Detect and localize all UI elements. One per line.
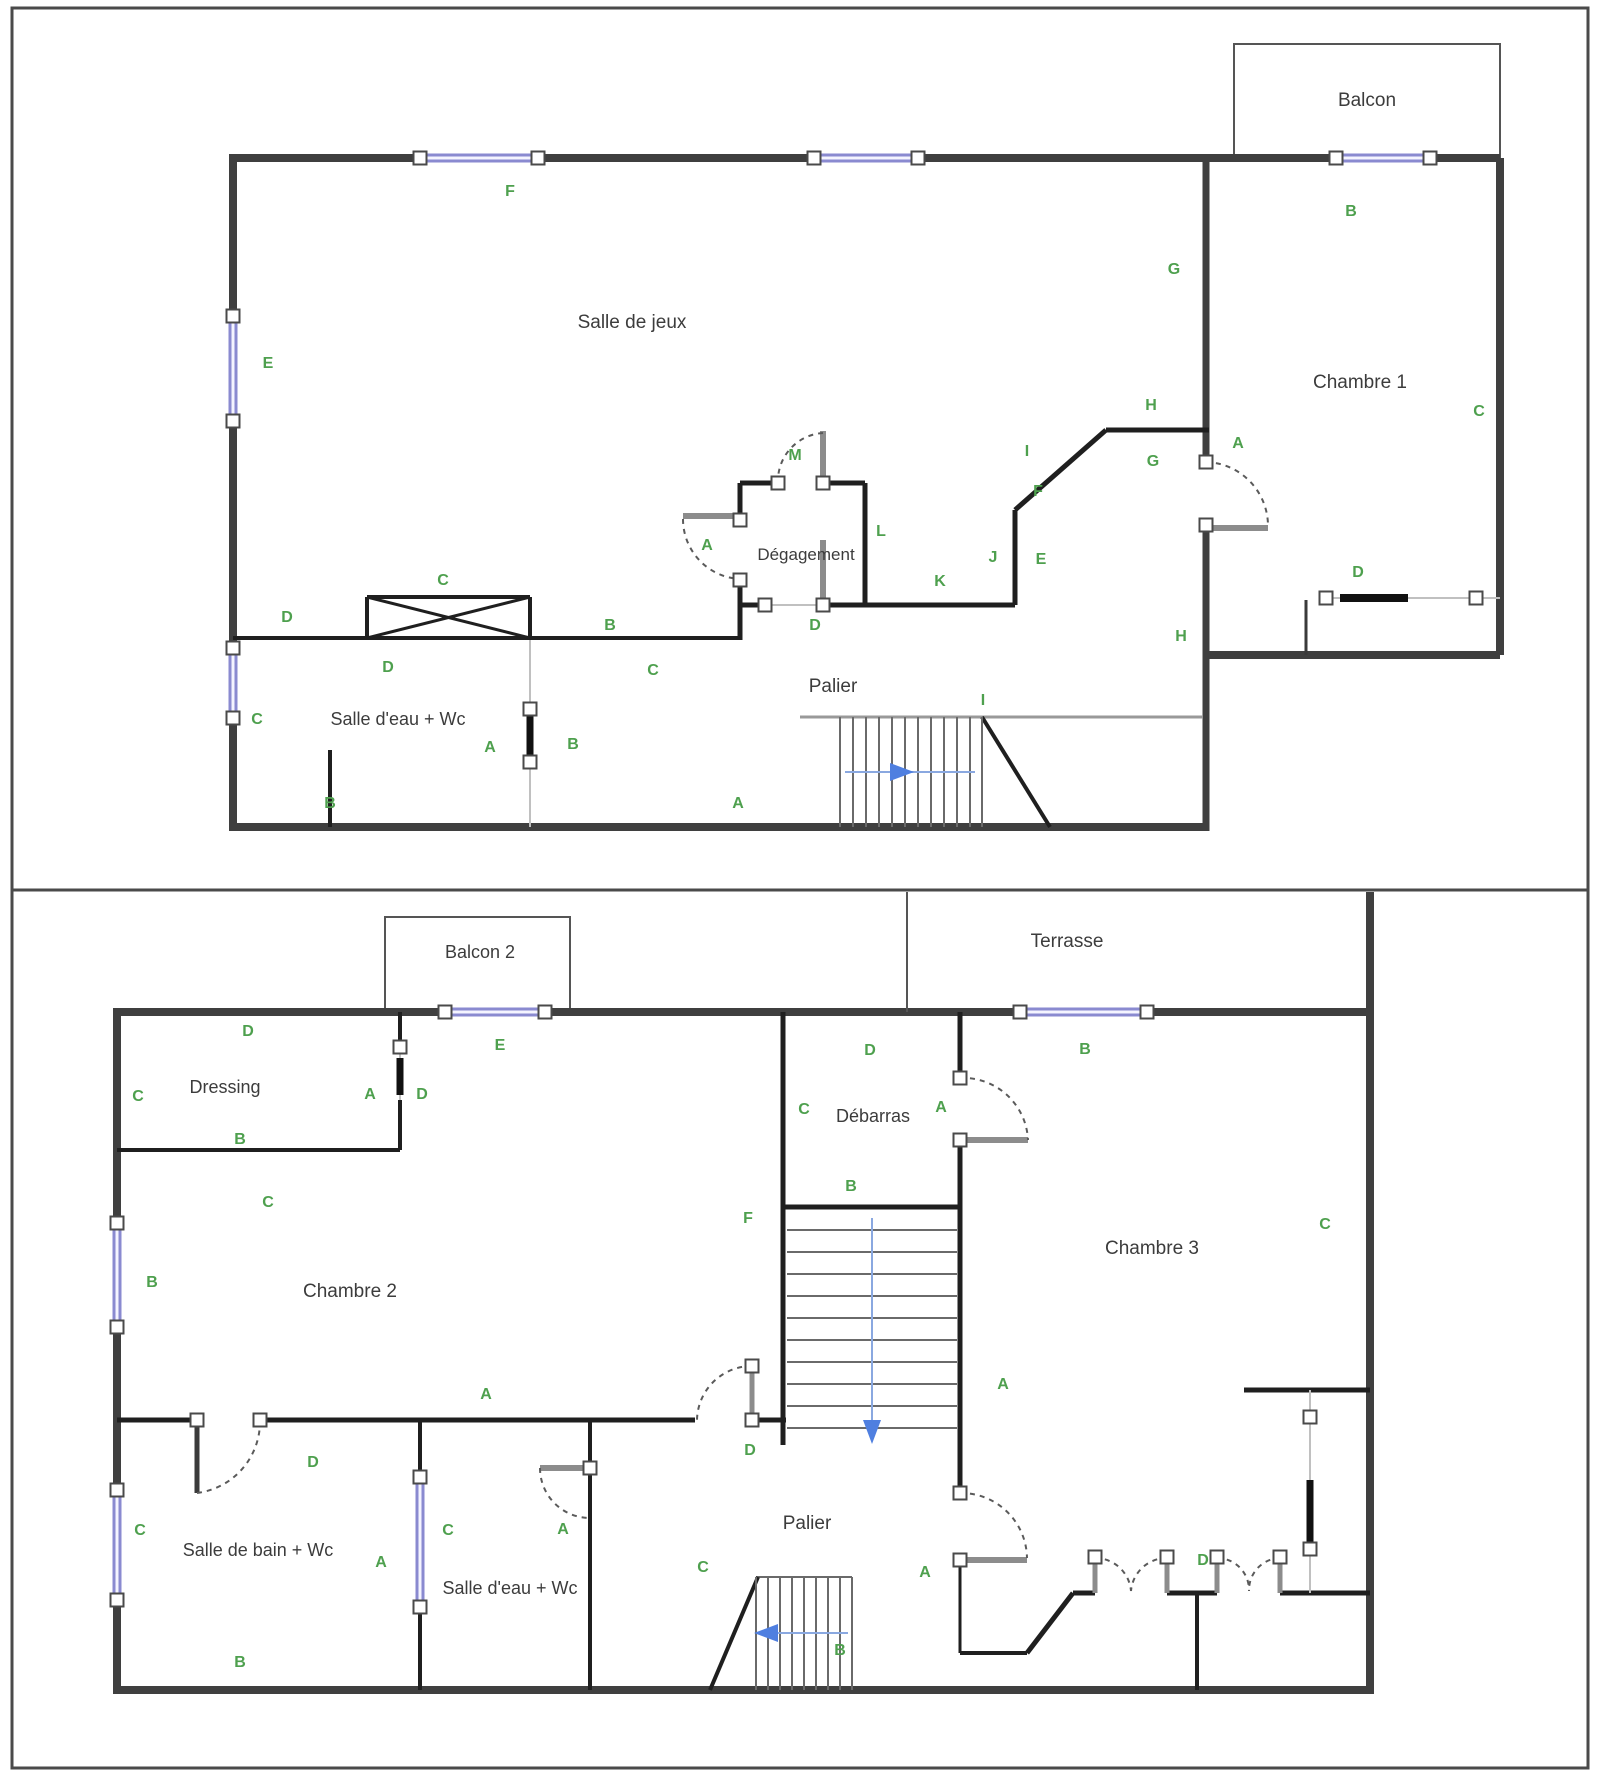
- segment-label-d-17: D: [281, 609, 293, 626]
- segment-label-a-23: A: [484, 739, 496, 756]
- segment-label-b-43: B: [146, 1274, 158, 1291]
- segment-label-a-8: A: [1232, 435, 1244, 452]
- segment-label-a-44: A: [480, 1386, 492, 1403]
- segment-label-c-48: C: [442, 1522, 454, 1539]
- arc-palier-D: [697, 1366, 752, 1420]
- segment-label-f-6: F: [1033, 483, 1043, 500]
- segment-label-f-0: F: [505, 183, 515, 200]
- segment-label-c-56: C: [1319, 1216, 1331, 1233]
- arrow-right: [890, 763, 914, 781]
- cap-10: [772, 477, 785, 490]
- segment-label-f-42: F: [743, 1210, 753, 1227]
- arc-chambre1-A: [1206, 462, 1268, 526]
- cap-5: [1424, 152, 1437, 165]
- cap-19: [524, 756, 537, 769]
- segment-label-c-21: C: [251, 711, 263, 728]
- segment-label-g-7: G: [1147, 453, 1159, 470]
- cap-9: [227, 712, 240, 725]
- segment-label-c-46: C: [134, 1522, 146, 1539]
- cap-47: [1274, 1551, 1287, 1564]
- segment-label-b-55: B: [234, 1654, 246, 1671]
- cap-46: [1211, 1551, 1224, 1564]
- segment-label-a-52: A: [919, 1564, 931, 1581]
- cap-20: [1320, 592, 1333, 605]
- segment-label-d-27: D: [1352, 564, 1364, 581]
- segment-label-a-34: A: [364, 1086, 376, 1103]
- cap-35: [191, 1414, 204, 1427]
- segment-label-a-12: A: [701, 537, 713, 554]
- segment-label-i-5: I: [1025, 443, 1029, 460]
- wall-I-diagonal: [1015, 430, 1106, 510]
- segment-label-b-24: B: [567, 736, 579, 753]
- cap-16: [1200, 456, 1213, 469]
- cap-15: [817, 599, 830, 612]
- cap-31: [414, 1601, 427, 1614]
- segment-label-h-4: H: [1145, 397, 1157, 414]
- arc-debarras-A: [960, 1078, 1028, 1140]
- outer-frame: [12, 8, 1588, 1768]
- cap-41: [954, 1554, 967, 1567]
- segment-label-b-54: B: [834, 1642, 846, 1659]
- segment-label-c-18: C: [437, 572, 449, 589]
- room-label-4: Palier: [809, 676, 858, 697]
- cap-4: [1330, 152, 1343, 165]
- cap-32: [394, 1041, 407, 1054]
- segment-label-j-13: J: [989, 549, 998, 566]
- segment-label-e-2: E: [263, 355, 274, 372]
- cap-13: [734, 574, 747, 587]
- segment-label-d-45: D: [307, 1454, 319, 1471]
- cap-28: [111, 1484, 124, 1497]
- room-label-7: Terrasse: [1031, 931, 1104, 952]
- segment-label-c-22: C: [647, 662, 659, 679]
- cap-14: [759, 599, 772, 612]
- cap-44: [1089, 1551, 1102, 1564]
- segment-label-h-26: H: [1175, 628, 1187, 645]
- small-stair-diag: [710, 1577, 758, 1690]
- cap-17: [1200, 519, 1213, 532]
- segment-label-d-50: D: [744, 1442, 756, 1459]
- cap-23: [539, 1006, 552, 1019]
- segment-label-b-36: B: [234, 1131, 246, 1148]
- segment-label-k-15: K: [934, 573, 946, 590]
- cap-24: [1014, 1006, 1027, 1019]
- segment-label-d-38: D: [864, 1042, 876, 1059]
- segment-label-b-1: B: [1345, 203, 1357, 220]
- cap-6: [227, 310, 240, 323]
- segment-label-a-49: A: [557, 1521, 569, 1538]
- segment-label-d-57: D: [1197, 1552, 1209, 1569]
- cap-33: [954, 1072, 967, 1085]
- cap-12: [734, 514, 747, 527]
- arc-chambre3-A: [960, 1493, 1027, 1558]
- segment-label-e-14: E: [1036, 551, 1047, 568]
- segment-label-d-16: D: [809, 617, 821, 634]
- segment-label-c-9: C: [1473, 403, 1485, 420]
- room-label-12: Salle de bain + Wc: [183, 1540, 334, 1560]
- cap-26: [111, 1217, 124, 1230]
- room-label-6: Balcon 2: [445, 942, 515, 962]
- room-label-2: Chambre 1: [1313, 372, 1407, 393]
- segment-label-a-53: A: [997, 1376, 1009, 1393]
- arc-bain-D: [197, 1422, 260, 1493]
- cap-22: [439, 1006, 452, 1019]
- segment-label-c-39: C: [798, 1101, 810, 1118]
- arrow-down: [863, 1420, 881, 1444]
- cap-34: [954, 1134, 967, 1147]
- room-label-11: Chambre 3: [1105, 1238, 1199, 1259]
- segment-label-d-32: D: [242, 1023, 254, 1040]
- segment-label-a-40: A: [935, 1099, 947, 1116]
- segment-label-b-41: B: [845, 1178, 857, 1195]
- segment-label-c-33: C: [132, 1088, 144, 1105]
- cap-18: [524, 703, 537, 716]
- closet-slope: [1027, 1593, 1073, 1653]
- segment-label-g-3: G: [1168, 261, 1180, 278]
- floor-plan-drawing: FBEGHIFGACMLAJEKDDCBDCCABIHDBAEBDCADBCDC…: [0, 0, 1600, 1778]
- cap-1: [532, 152, 545, 165]
- room-label-3: Dégagement: [757, 545, 855, 564]
- cap-25: [1141, 1006, 1154, 1019]
- cap-27: [111, 1321, 124, 1334]
- room-label-5: Salle d'eau + Wc: [330, 709, 465, 729]
- cap-37: [746, 1360, 759, 1373]
- cap-2: [808, 152, 821, 165]
- cap-29: [111, 1594, 124, 1607]
- floor-plan-page: FBEGHIFGACMLAJEKDDCBDCCABIHDBAEBDCADBCDC…: [0, 0, 1600, 1778]
- cap-3: [912, 152, 925, 165]
- cap-45: [1161, 1551, 1174, 1564]
- segment-label-b-31: B: [1079, 1041, 1091, 1058]
- segment-label-c-51: C: [697, 1559, 709, 1576]
- room-label-10: Chambre 2: [303, 1281, 397, 1302]
- room-label-8: Dressing: [189, 1077, 260, 1097]
- segment-label-m-10: M: [788, 447, 801, 464]
- room-label-9: Débarras: [836, 1106, 910, 1126]
- cap-40: [954, 1487, 967, 1500]
- cap-36: [254, 1414, 267, 1427]
- balcon2-box: [385, 917, 570, 1012]
- segment-label-e-30: E: [495, 1037, 506, 1054]
- cap-21: [1470, 592, 1483, 605]
- cap-38: [746, 1414, 759, 1427]
- room-label-13: Salle d'eau + Wc: [442, 1578, 577, 1598]
- cap-39: [584, 1462, 597, 1475]
- cap-11: [817, 477, 830, 490]
- room-label-0: Balcon: [1338, 90, 1396, 111]
- segment-label-b-19: B: [604, 617, 616, 634]
- room-label-14: Palier: [783, 1513, 832, 1534]
- segment-label-d-35: D: [416, 1086, 428, 1103]
- segment-label-a-29: A: [732, 795, 744, 812]
- cap-30: [414, 1471, 427, 1484]
- segment-label-i-25: I: [981, 692, 985, 709]
- cap-42: [1304, 1411, 1317, 1424]
- stair-diag-up: [982, 717, 1050, 827]
- cap-8: [227, 642, 240, 655]
- cap-7: [227, 415, 240, 428]
- segment-label-d-20: D: [382, 659, 394, 676]
- segment-label-a-47: A: [375, 1554, 387, 1571]
- cap-0: [414, 152, 427, 165]
- room-label-1: Salle de jeux: [578, 312, 687, 333]
- cap-43: [1304, 1543, 1317, 1556]
- segment-label-c-37: C: [262, 1194, 274, 1211]
- segment-label-b-28: B: [324, 795, 336, 812]
- arrow-left: [754, 1624, 778, 1642]
- segment-label-l-11: L: [876, 523, 886, 540]
